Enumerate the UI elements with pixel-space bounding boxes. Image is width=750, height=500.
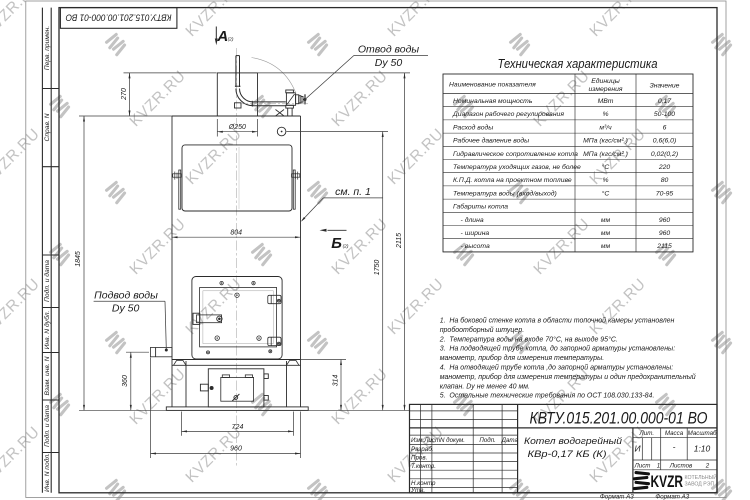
svg-text:6: 6: [663, 124, 667, 131]
svg-text:мм: мм: [601, 243, 611, 250]
svg-text:1:10: 1:10: [694, 444, 711, 454]
svg-text:Техническая характеристика: Техническая характеристика: [498, 57, 658, 71]
svg-text:Диапазон рабочего регулировани: Диапазон рабочего регулирования: [452, 110, 564, 118]
svg-text:Расход воды: Расход воды: [453, 123, 493, 131]
svg-text:Листов: Листов: [669, 462, 693, 469]
svg-text:К.П.Д. котла на проектном топл: К.П.Д. котла на проектном топливе: [453, 177, 572, 184]
svg-text:360: 360: [122, 375, 129, 387]
svg-text:KVZR: KVZR: [651, 473, 684, 491]
svg-text:314: 314: [333, 375, 340, 387]
svg-text:270: 270: [121, 88, 128, 101]
svg-text:Значение: Значение: [650, 83, 680, 90]
svg-text:Взам. инв. N: Взам. инв. N: [44, 356, 51, 395]
svg-text:Т.контр.: Т.контр.: [411, 463, 436, 470]
svg-text:KVZR.RU: KVZR.RU: [587, 0, 650, 40]
svg-text:724: 724: [232, 424, 244, 431]
svg-text:измерения: измерения: [588, 86, 622, 93]
svg-text:(2): (2): [343, 244, 349, 250]
svg-text:Лист: Лист: [634, 462, 651, 469]
svg-text:Рабочее давление воды: Рабочее давление воды: [453, 137, 529, 145]
svg-text:манометр, прибор для измерения: манометр, прибор для измерения температу…: [440, 354, 605, 362]
svg-text:KVZR.RU: KVZR.RU: [587, 276, 650, 339]
svg-text:KVZR.RU: KVZR.RU: [531, 216, 594, 279]
svg-text:KVZR.RU: KVZR.RU: [127, 366, 190, 429]
svg-text:960: 960: [659, 217, 671, 224]
svg-text:Единицы: Единицы: [591, 77, 619, 85]
svg-text:Изм.Лист: Изм.Лист: [411, 437, 440, 444]
svg-text:МПа (кгс/см² ): МПа (кгс/см² ): [583, 151, 628, 158]
svg-text:И: И: [635, 444, 642, 454]
svg-text:Масса: Масса: [665, 430, 684, 437]
svg-text:см. п. 1: см. п. 1: [335, 186, 371, 198]
svg-text:2115: 2115: [396, 233, 403, 249]
svg-text:KVZR.RU: KVZR.RU: [329, 68, 392, 131]
svg-text:Котел водогрейный: Котел водогрейный: [524, 436, 623, 447]
svg-text:KVZR.RU: KVZR.RU: [0, 126, 43, 189]
svg-text:- длина: - длина: [453, 216, 484, 224]
svg-text:1. На боковой стенке котла в: 1. На боковой стенке котла в области топ…: [440, 317, 675, 325]
svg-text:Пров.: Пров.: [411, 454, 427, 461]
svg-text:0,6(6,0): 0,6(6,0): [653, 138, 676, 145]
svg-text:1750: 1750: [374, 260, 381, 276]
svg-text:Перв. примен.: Перв. примен.: [44, 26, 51, 71]
svg-text:Подп. и дата: Подп. и дата: [43, 260, 51, 302]
svg-text:804: 804: [230, 230, 242, 237]
svg-text:Температура уходящих газов, не: Температура уходящих газов, не более: [453, 163, 581, 171]
svg-text:KVZR.RU: KVZR.RU: [183, 424, 246, 487]
svg-text:КВТУ.015.201.00.000-01 ВО: КВТУ.015.201.00.000-01 ВО: [65, 13, 172, 24]
svg-text:Утв.: Утв.: [410, 487, 425, 494]
svg-text:Отвод воды: Отвод воды: [358, 44, 420, 56]
svg-text:%: %: [602, 177, 608, 184]
svg-text:Формат А3: Формат А3: [655, 493, 689, 500]
svg-text:220: 220: [658, 164, 671, 171]
svg-text:-: -: [673, 442, 676, 452]
svg-text:Dy 50: Dy 50: [375, 57, 403, 69]
svg-text:0,02(0,2): 0,02(0,2): [651, 151, 678, 158]
svg-text:Инв. N подл.: Инв. N подл.: [43, 453, 51, 492]
svg-text:МПа (кгс/см² ): МПа (кгс/см² ): [583, 138, 628, 145]
svg-text:3. На подводящей трубе котла,: 3. На подводящей трубе котла, до запорно…: [440, 345, 676, 353]
svg-text:%: %: [602, 111, 608, 118]
svg-text:960: 960: [230, 446, 242, 453]
svg-text:KVZR.RU: KVZR.RU: [0, 424, 43, 487]
svg-text:Разраб.: Разраб.: [411, 446, 433, 453]
svg-text:Формат А3: Формат А3: [600, 493, 634, 500]
svg-text:Габариты котла: Габариты котла: [453, 203, 508, 211]
svg-text:клапан. Dу не менее 40 мм.: клапан. Dу не менее 40 мм.: [440, 383, 530, 390]
svg-text:Температура воды (вход/выход): Температура воды (вход/выход): [453, 189, 557, 197]
svg-text:KVZR.RU: KVZR.RU: [385, 126, 448, 189]
svg-text:KVZR.RU: KVZR.RU: [127, 68, 190, 131]
svg-text:50-100: 50-100: [654, 111, 675, 118]
svg-text:мм: мм: [601, 217, 611, 224]
svg-text:KVZR.RU: KVZR.RU: [183, 0, 246, 40]
svg-text:Подвод воды: Подвод воды: [94, 290, 158, 302]
svg-text:KVZR.RU: KVZR.RU: [183, 126, 246, 189]
svg-text:Масштаб: Масштаб: [688, 430, 717, 437]
svg-text:- высота: - высота: [453, 243, 490, 250]
svg-text:Инв. N дубл.: Инв. N дубл.: [43, 311, 51, 350]
svg-text:5. Остальные технические треб: 5. Остальные технические требования по О…: [440, 392, 655, 400]
svg-text:Подп.: Подп.: [479, 437, 495, 444]
svg-text:Dy 50: Dy 50: [112, 303, 140, 315]
svg-text:пробоотборный штуцер.: пробоотборный штуцер.: [440, 326, 525, 334]
svg-text:Гидравлическое сопротивление к: Гидравлическое сопротивление котла: [453, 150, 578, 158]
svg-text:0,17: 0,17: [658, 98, 671, 105]
svg-text:КОТЕЛЬНЫЙ: КОТЕЛЬНЫЙ: [685, 473, 718, 481]
svg-text:Б: Б: [331, 235, 342, 252]
svg-text:80: 80: [661, 177, 669, 184]
svg-text:мм: мм: [601, 230, 611, 237]
svg-text:Справ. N: Справ. N: [44, 113, 51, 141]
svg-text:N докум.: N докум.: [440, 437, 465, 444]
svg-text:KVZR.RU: KVZR.RU: [385, 0, 448, 40]
svg-text:Дата: Дата: [501, 437, 519, 444]
svg-text:Наименование показателя: Наименование показателя: [449, 82, 536, 89]
svg-text:KVZR.RU: KVZR.RU: [531, 68, 594, 131]
svg-text:Лит.: Лит.: [639, 430, 655, 437]
svg-text:Подп. и дата: Подп. и дата: [43, 405, 51, 447]
svg-text:(2): (2): [228, 37, 234, 43]
svg-text:KVZR.RU: KVZR.RU: [0, 276, 43, 339]
svg-text:- ширина: - ширина: [453, 230, 489, 237]
svg-text:2: 2: [705, 462, 710, 469]
svg-text:4. На отводящей трубе котла ,: 4. На отводящей трубе котла ,до запорной…: [440, 364, 674, 372]
svg-text:м³/ч: м³/ч: [599, 124, 612, 131]
svg-text:960: 960: [659, 230, 671, 237]
svg-text:КВТУ.015.201.00.000-01 ВО: КВТУ.015.201.00.000-01 ВО: [530, 409, 708, 428]
svg-text:KVZR.RU: KVZR.RU: [385, 276, 448, 339]
svg-text:ЗАВОД РЭП: ЗАВОД РЭП: [685, 482, 715, 488]
svg-text:°С: °С: [602, 163, 610, 171]
svg-text:°С: °С: [602, 189, 610, 197]
svg-text:Номинальная мощность: Номинальная мощность: [453, 98, 533, 105]
svg-text:2. Температура воды на входе: 2. Температура воды на входе 70°С, на вы…: [439, 335, 618, 343]
svg-text:А: А: [216, 28, 228, 45]
svg-text:KVZR.RU: KVZR.RU: [0, 0, 43, 40]
svg-text:KVZR.RU: KVZR.RU: [127, 216, 190, 279]
svg-text:2115: 2115: [656, 243, 672, 250]
svg-text:КВр-0,17 КБ (К): КВр-0,17 КБ (К): [528, 449, 607, 460]
svg-text:1: 1: [657, 462, 660, 469]
svg-text:Ø250: Ø250: [228, 124, 246, 131]
svg-text:МВт: МВт: [598, 98, 614, 105]
svg-text:манометр, прибор для измерения: манометр, прибор для измерения температу…: [440, 373, 696, 381]
svg-text:1845: 1845: [75, 251, 82, 267]
svg-text:70-95: 70-95: [656, 190, 674, 197]
